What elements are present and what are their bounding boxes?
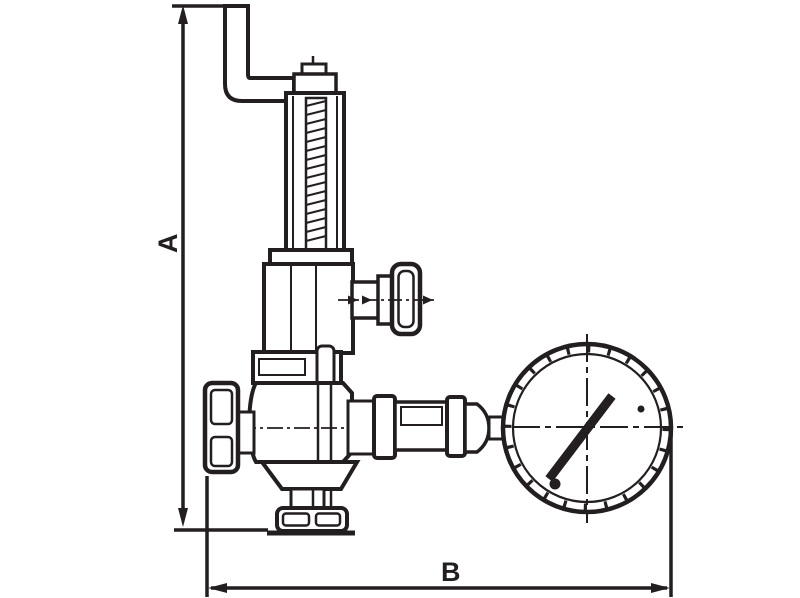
body-mid-section — [249, 383, 352, 462]
body-bottom-taper — [262, 462, 357, 489]
blowoff-pipe-elbow — [225, 6, 294, 101]
adjusting-stem-assembly — [286, 56, 344, 252]
dimension-a-arrow-down-icon — [178, 508, 188, 527]
bottom-flange — [267, 489, 355, 533]
gauge-coupling — [465, 404, 489, 452]
gauge-needle-hub — [550, 479, 561, 490]
dimension-b-label: B — [441, 557, 461, 587]
handwheel-outer — [392, 264, 420, 334]
outlet-fittings — [348, 396, 506, 458]
outlet-hex-nut-1 — [374, 396, 395, 458]
spring-housing — [264, 250, 353, 353]
inlet-port — [205, 383, 254, 472]
flange-body — [277, 508, 347, 531]
pressure-gauge — [503, 334, 684, 523]
pipe-elbow-outline — [225, 6, 294, 101]
spring-housing-body — [264, 264, 353, 353]
outlet-connector — [348, 401, 375, 454]
valve-gauge-line-drawing: A B — [0, 0, 800, 598]
dimension-b-arrow-right-icon — [651, 583, 670, 593]
outlet-hex-nut-2 — [447, 397, 465, 456]
centerline-arrow-icon — [423, 296, 433, 305]
dimension-a-arrow-up-icon — [178, 5, 188, 24]
dimension-a-label: A — [153, 234, 183, 254]
gauge-screw-dot — [638, 406, 645, 413]
dimension-b-arrow-left-icon — [208, 583, 227, 593]
technical-drawing-canvas: A B — [0, 0, 800, 598]
